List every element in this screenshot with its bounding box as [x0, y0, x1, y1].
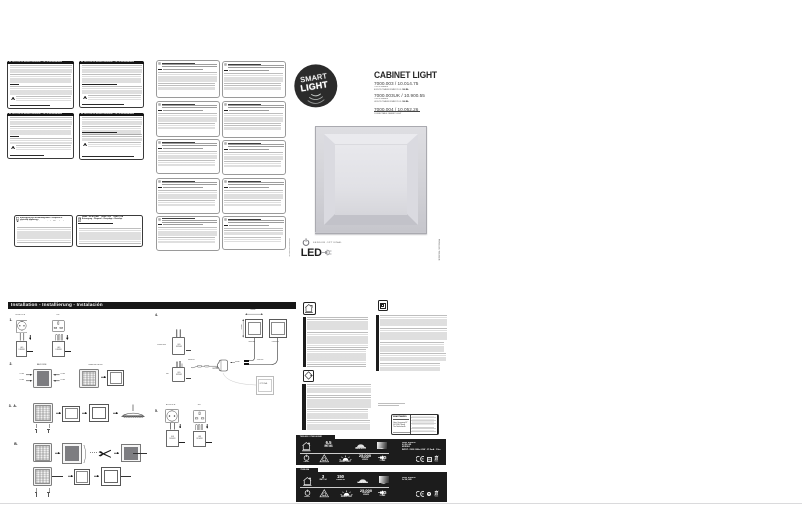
svg-text:5: 5: [384, 491, 386, 495]
svg-text:5: 5: [384, 456, 386, 460]
